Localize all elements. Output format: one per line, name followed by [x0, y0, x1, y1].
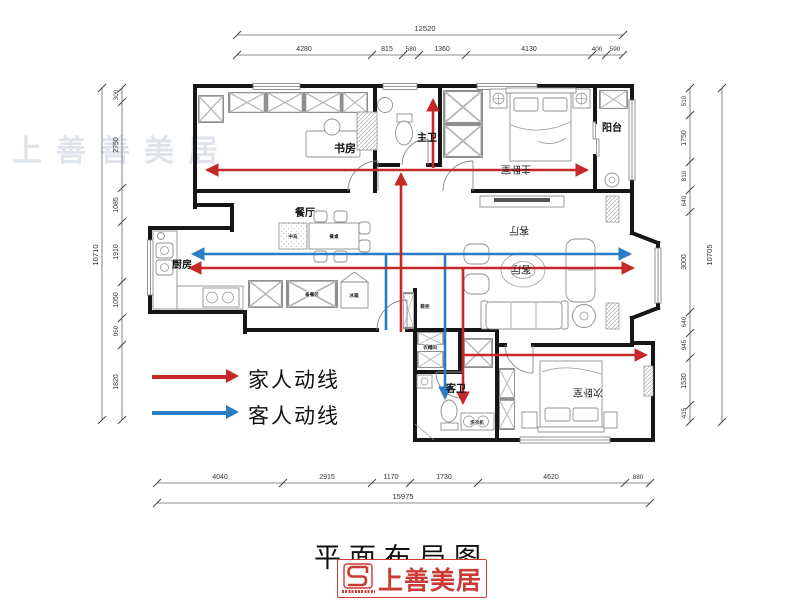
floorplan-drawing: 12520 4280 815 580 1360 4130 400 590 404…: [0, 0, 800, 600]
desk-chair: [324, 119, 340, 135]
chair: [334, 211, 347, 222]
sink: [156, 243, 173, 258]
room-label-second-bedroom: 次卧室: [573, 386, 603, 399]
sliding-door: [593, 122, 596, 139]
dim-seg: 300: [113, 89, 120, 100]
bathroom-sink: [417, 375, 432, 388]
chair: [314, 211, 327, 222]
toilet: [441, 400, 457, 422]
label-washer: 洗衣机: [470, 419, 484, 426]
shoe-cabinet-box: [403, 293, 413, 328]
logo-subtext-line: [342, 590, 375, 593]
dim-seg: 640: [681, 195, 688, 206]
dim-seg: 950: [113, 325, 120, 336]
room-label-kitchen: 厨房: [172, 258, 192, 271]
dim-seg: 1360: [434, 46, 450, 53]
logo-monogram-icon: [343, 563, 373, 589]
chair: [359, 222, 370, 234]
dim-seg: 400: [592, 46, 603, 53]
room-label-dining: 餐厅: [294, 206, 315, 219]
pillow: [514, 98, 538, 111]
chair: [334, 251, 347, 262]
label-dining-table: 餐桌: [328, 233, 339, 240]
radiator: [644, 366, 653, 396]
dimension-right: 510 1750 810 640 3000 640 945 1530 415 1…: [681, 84, 726, 426]
dim-seg: 580: [406, 46, 417, 53]
dim-seg: 4040: [212, 474, 228, 481]
dim-seg: 640: [681, 316, 688, 327]
nightstand: [522, 412, 537, 428]
dim-seg: 1730: [436, 474, 452, 481]
cloakroom-cabinet: [418, 332, 443, 344]
cabinet: [249, 281, 282, 307]
headboard: [506, 88, 576, 93]
dim-seg: 1910: [113, 244, 120, 260]
dim-seg: 590: [610, 46, 621, 53]
window: [253, 84, 300, 90]
family-line-sample: [152, 375, 226, 379]
dim-seg: 4280: [296, 46, 312, 53]
floorplan-page: 上善善美居: [0, 0, 800, 600]
tv: [494, 198, 550, 202]
pillow: [543, 98, 567, 111]
sofa: [486, 302, 562, 329]
dim-seg: 510: [681, 95, 688, 106]
shaft: [357, 112, 377, 150]
dim-seg: 1170: [383, 474, 398, 481]
dim-seg: 815: [381, 46, 393, 53]
room-label-living-small: 客厅: [511, 263, 531, 276]
dim-seg: 880: [633, 474, 644, 481]
window: [629, 100, 635, 180]
sliding-door: [597, 139, 600, 156]
armchair: [464, 274, 489, 294]
company-logo: 上善美居: [337, 559, 487, 598]
wardrobe: [499, 400, 514, 429]
balcony-cabinet: [600, 91, 627, 109]
door-entrance: [377, 300, 407, 330]
room-label-master-bedroom: 主卧室: [501, 163, 531, 176]
window: [520, 437, 610, 443]
dim-top-total: 12520: [414, 24, 435, 33]
dim-seg: 4620: [543, 474, 559, 481]
room-label-cloakroom: 衣帽间: [423, 344, 437, 351]
dimension-top: 12520 4280 815 580 1360 4130 400 590: [233, 24, 627, 59]
headboard: [538, 427, 604, 432]
dim-seg: 1750: [681, 130, 688, 146]
plant: [605, 173, 619, 187]
radiator: [606, 303, 619, 329]
chaise-sofa: [566, 239, 595, 302]
room-label-balcony: 阳台: [602, 121, 622, 134]
chair: [314, 251, 327, 262]
dim-seg: 1820: [113, 374, 120, 390]
legend-family: 家人动线: [152, 366, 392, 390]
wardrobe: [444, 125, 482, 157]
dimension-bottom: 4040 2915 1170 1730 4620 880 15975: [153, 474, 654, 507]
dim-seg: 810: [681, 170, 688, 181]
radiator: [606, 196, 619, 222]
legend-guest-label: 客人动线: [248, 400, 340, 430]
label-fridge: 冰箱: [349, 292, 359, 299]
bathroom-sink: [378, 98, 393, 113]
door-master: [443, 161, 473, 191]
room-label-master-bath: 主卫: [417, 131, 437, 144]
guest-line-sample: [152, 411, 226, 415]
cabinet: [199, 96, 223, 122]
dim-seg: 1050: [113, 292, 120, 308]
legend-family-label: 家人动线: [248, 364, 340, 394]
room-label-living: 客厅: [509, 224, 529, 237]
family-arrowhead-icon: [226, 369, 239, 383]
window: [655, 248, 661, 303]
wardrobe: [444, 91, 482, 123]
dim-seg: 1530: [681, 373, 688, 389]
room-label-guest-bath: 客卫: [445, 382, 466, 395]
logo-text: 上善美居: [378, 561, 482, 597]
nightstand: [604, 412, 617, 428]
dim-left-total: 10710: [91, 244, 100, 265]
wardrobe: [499, 369, 514, 398]
guest-arrowhead-icon: [226, 405, 239, 419]
cloakroom-cabinet: [418, 352, 443, 368]
toilet-tank: [441, 423, 458, 430]
hall-closet: [464, 339, 492, 367]
dim-seg: 4130: [521, 46, 537, 53]
chair: [359, 240, 370, 252]
dim-seg: 1085: [113, 197, 120, 213]
room-label-study: 书房: [334, 141, 356, 155]
label-prep-area: 备餐区: [304, 291, 319, 298]
dimension-left: 10710 300 2750 1085 1910 1050 950 1820: [91, 84, 126, 424]
dim-right-total: 10705: [705, 244, 714, 265]
toilet: [396, 121, 413, 145]
pillow: [573, 408, 598, 421]
label-shoe-cabinet: 鞋柜: [420, 303, 430, 310]
dim-seg: 2750: [113, 137, 120, 153]
dim-seg: 415: [681, 407, 688, 418]
side-table: [573, 305, 596, 328]
dim-seg: 945: [681, 339, 688, 350]
dim-seg: 3000: [681, 254, 688, 270]
label-island: 中岛: [288, 233, 298, 240]
dim-bottom-total: 15975: [392, 492, 413, 501]
sink: [156, 260, 173, 275]
dim-seg: 2915: [319, 474, 335, 481]
window: [383, 84, 417, 90]
pillow: [545, 408, 570, 421]
legend-guest: 客人动线: [152, 402, 392, 426]
